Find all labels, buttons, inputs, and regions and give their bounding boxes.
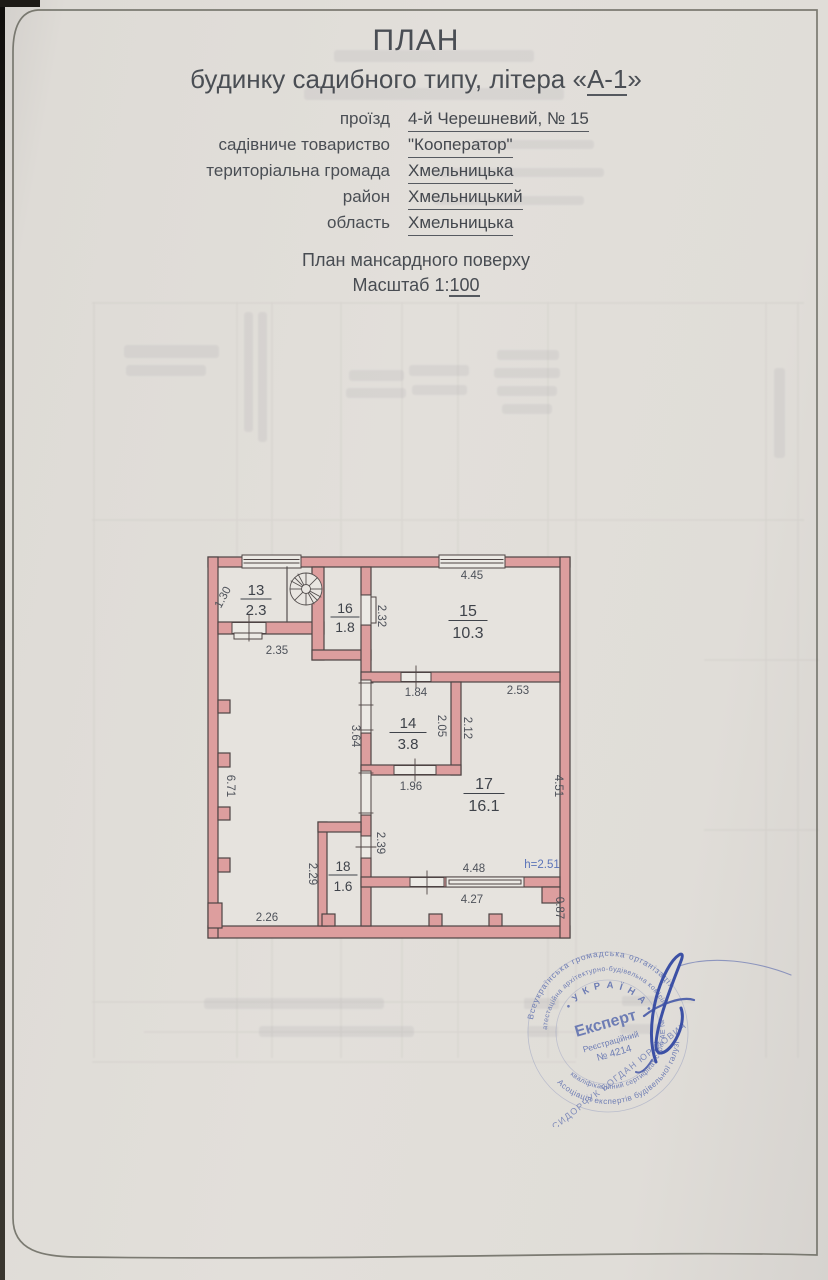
title-block: ПЛАН будинку садибного типу, літера «А-1… (4, 24, 828, 95)
dim-4-27: 4.27 (461, 894, 483, 906)
address-row: область Хмельницька (60, 210, 680, 236)
room14-number: 14 (400, 715, 417, 732)
dim-2-39: 2.39 (374, 832, 386, 854)
spiral-stair (290, 573, 322, 605)
dim-1-96: 1.96 (400, 781, 422, 793)
room14-area: 3.8 (398, 736, 419, 753)
dim-2-53: 2.53 (507, 685, 529, 697)
plan-floor (218, 567, 560, 926)
address-label: район (60, 184, 408, 210)
room17-number: 17 (475, 776, 493, 793)
room15-number: 15 (459, 603, 477, 620)
address-row: район Хмельницький (60, 184, 680, 210)
scale-value: 100 (449, 275, 479, 297)
room16-area: 1.8 (335, 619, 355, 635)
dim-2-35: 2.35 (266, 645, 288, 657)
dim-4-51: 4.51 (552, 775, 564, 797)
dim-0-87: 0.87 (553, 897, 565, 919)
room13-number: 13 (248, 582, 265, 599)
address-block: проїзд 4-й Черешневий, № 15 садівниче то… (60, 106, 680, 236)
dim-2-26: 2.26 (256, 912, 278, 924)
dim-2-05: 2.05 (435, 715, 447, 737)
doc-title: ПЛАН (4, 24, 828, 58)
floor-plan: 13 2.3 16 1.8 15 10.3 14 3.8 17 16.1 18 … (204, 553, 576, 945)
room13-area: 2.3 (246, 602, 267, 619)
room17-area: 16.1 (468, 798, 499, 815)
doc-subtitle-line: будинку садибного типу, літера «А-1» (4, 64, 828, 95)
room16-number: 16 (337, 600, 353, 616)
dim-1-84: 1.84 (405, 687, 428, 699)
photo-dark-corner (0, 0, 40, 7)
plan-caption-line2: Масштаб 1:100 (4, 275, 828, 296)
address-row: територіальна громада Хмельницька (60, 158, 680, 184)
plan-caption: План мансардного поверху Масштаб 1:100 (4, 250, 828, 296)
dim-2-32: 2.32 (375, 605, 387, 627)
photo-dark-edge (0, 0, 5, 1280)
address-row: проїзд 4-й Черешневий, № 15 (60, 106, 680, 132)
address-value: Хмельницький (408, 184, 523, 210)
address-value: "Кооператор" (408, 132, 513, 158)
address-value: Хмельницька (408, 158, 513, 184)
address-label: проїзд (60, 106, 408, 132)
dim-4-48: 4.48 (463, 863, 485, 875)
room15-area: 10.3 (452, 625, 483, 642)
dim-3-64: 3.64 (349, 725, 361, 748)
title2-pre: будинку садибного типу, літера « (190, 64, 587, 94)
room18-number: 18 (335, 859, 350, 874)
scale-prefix: Масштаб 1: (352, 275, 449, 295)
dim-2-12: 2.12 (461, 717, 473, 739)
building-letter: А-1 (587, 64, 627, 96)
title2-post: » (627, 64, 641, 94)
expert-stamp: Всеукраїнська громадська організація Асо… (496, 942, 806, 1127)
address-row: садівниче товариство "Кооператор" (60, 132, 680, 158)
dim-6-71: 6.71 (224, 775, 236, 797)
room18-area: 1.6 (334, 879, 353, 894)
address-value: Хмельницька (408, 210, 513, 236)
address-label: територіальна громада (60, 158, 408, 184)
address-label: область (60, 210, 408, 236)
dim-2-29: 2.29 (306, 863, 318, 885)
address-value: 4-й Черешневий, № 15 (408, 106, 589, 132)
ceiling-height-note: h=2.51 (524, 859, 560, 871)
address-label: садівниче товариство (60, 132, 408, 158)
dim-4-45: 4.45 (461, 570, 483, 582)
plan-caption-line1: План мансардного поверху (4, 250, 828, 271)
scanned-page: ПЛАН будинку садибного типу, літера «А-1… (4, 0, 828, 1280)
